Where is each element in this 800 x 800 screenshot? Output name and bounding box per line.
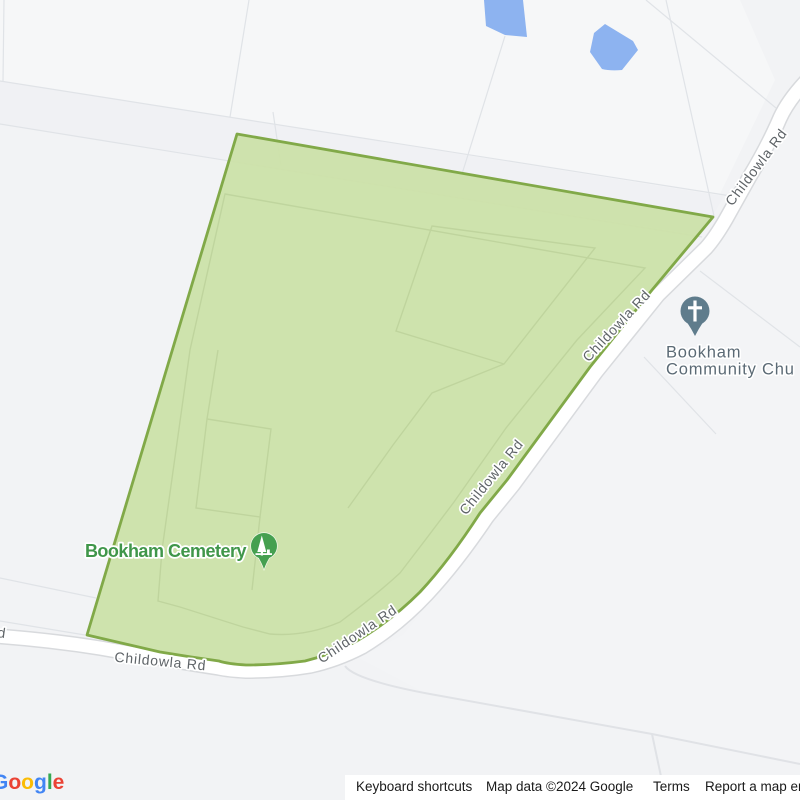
svg-text:Map data ©2024 Google: Map data ©2024 Google xyxy=(486,779,633,794)
svg-text:Keyboard shortcuts: Keyboard shortcuts xyxy=(356,779,473,794)
svg-text:Bookham Cemetery: Bookham Cemetery xyxy=(85,541,247,561)
svg-text:Community Chu: Community Chu xyxy=(666,361,795,379)
svg-text:Report a map err: Report a map err xyxy=(705,779,800,794)
svg-text:Terms: Terms xyxy=(653,779,690,794)
svg-text:Bookham: Bookham xyxy=(666,344,741,362)
svg-text:Google: Google xyxy=(0,771,64,794)
